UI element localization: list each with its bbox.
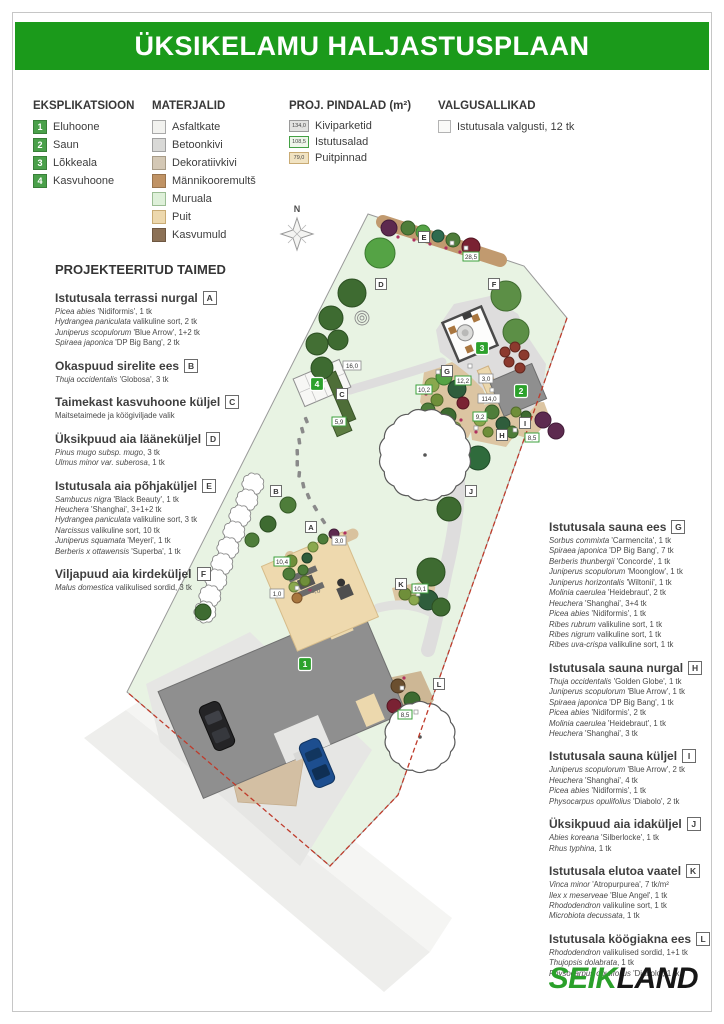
sauna-furniture (504, 357, 514, 367)
plant-item: Juniperus scopulorum 'Blue Arrow', 1 tk (549, 687, 719, 697)
bed-g-plants (431, 394, 443, 406)
sauna-furniture (519, 350, 529, 360)
plant-item: Heuchera 'Shanghai', 3 tk (549, 729, 719, 739)
bed-k-plants (409, 595, 419, 605)
area-labels-planting: 10,1 (412, 584, 428, 593)
garden-lights (436, 370, 440, 374)
plant-item: Physocarpus opulifolius 'Diabolo', 2 tk (549, 797, 719, 807)
section-heading: Üksikpuud aia idaküljel (549, 817, 682, 831)
stepping-stones (297, 471, 301, 478)
bed-a-plants (318, 534, 328, 544)
area-labels-planting: 5,9 (335, 419, 344, 426)
section-letter: F (197, 567, 211, 581)
area-labels-planting: 8,5 (525, 433, 539, 442)
area-labels-paving: 3,0 (479, 374, 493, 383)
apple-tree (503, 319, 529, 345)
zone-label-c: C (339, 390, 345, 399)
section-letter: E (202, 479, 216, 493)
area-labels-paving: 3,0 (335, 538, 344, 545)
section-heading: Istutusala terrassi nurgal (55, 291, 198, 305)
tree (306, 333, 328, 355)
tree (195, 604, 211, 620)
plant-item: Juniperus scopulorum 'Blue Arrow', 1+2 t… (55, 328, 265, 338)
bed-h-plants (511, 407, 521, 417)
area-labels-planting: 28,5 (465, 254, 478, 261)
plant-item: Rhododendron valikulised sordid, 1+1 tk (549, 948, 719, 958)
north-arrow: N (294, 204, 301, 214)
plant-item: Hydrangea paniculata valikuline sort, 2 … (55, 317, 265, 327)
bed-a-plants (302, 553, 312, 563)
section-letter: L (696, 932, 710, 946)
zone-label-d: D (378, 280, 384, 289)
bed-h-plants (483, 427, 493, 437)
section-heading: Viljapuud aia kirdeküljel (55, 567, 192, 581)
plant-list: Sambucus nigra 'Black Beauty', 1 tkHeuch… (55, 495, 265, 558)
plant-list: Maitsetaimede ja köögiviljade valik (55, 411, 265, 421)
bed-north-plants (396, 235, 399, 238)
plant-list: Thuja occidentalis 'Globosa', 3 tk (55, 375, 265, 385)
area-labels-planting: 8,5 (401, 712, 410, 719)
logo-second: LAND (617, 962, 698, 995)
bed-k-plants (432, 598, 450, 616)
section-heading: Üksikpuud aia lääneküljel (55, 432, 201, 446)
plant-item: Ulmus minor var. suberosa, 1 tk (55, 458, 265, 468)
area-labels-planting: 8,5 (398, 710, 412, 719)
sauna-furniture (510, 342, 520, 352)
section-letter: A (203, 291, 217, 305)
plant-section-i: Istutusala sauna küljelI Juniperus scopu… (549, 749, 719, 807)
plant-item: Ribes nigrum valikuline sort, 1 tk (549, 630, 719, 640)
garden-lights (474, 426, 478, 430)
area-labels-paving: 1,0 (270, 589, 284, 598)
garden-lights (295, 586, 299, 590)
area-labels-paving: 3,0 (332, 536, 346, 545)
bed-north-plants (381, 220, 397, 236)
zone-label-a: A (308, 523, 314, 532)
tree (328, 330, 348, 350)
plant-item: Berberis thunbergii 'Concorde', 1 tk (549, 557, 719, 567)
sauna-furniture (500, 347, 510, 357)
plant-list: Sorbus commixta 'Carmencita', 1 tkSpirae… (549, 536, 719, 651)
zone-label-k: K (396, 579, 407, 590)
area-labels-planting: 9,2 (476, 414, 485, 421)
plant-section-g: Istutusala sauna eesG Sorbus commixta 'C… (549, 520, 719, 651)
plant-item: Sambucus nigra 'Black Beauty', 1 tk (55, 495, 265, 505)
garden-lights (513, 428, 517, 432)
zone-label-i: I (520, 418, 531, 429)
badge-greenhouse: 4 (311, 378, 324, 391)
plant-list: Thuja occidentalis 'Golden Globe', 1 tkJ… (549, 677, 719, 740)
plant-list: Vinca minor 'Atropurpurea', 7 tk/m²Ilex … (549, 880, 719, 922)
zone-label-e: E (419, 232, 430, 243)
plan-sheet: ÜKSIKELAMU HALJASTUSPLAAN EKSPLIKATSIOON… (0, 0, 724, 1024)
plant-list: Malus domestica valikulised sordid, 3 tk (55, 583, 265, 593)
plant-item: Juniperus horizontalis 'Wiltonii', 1 tk (549, 578, 719, 588)
plant-item: Thuja occidentalis 'Globosa', 3 tk (55, 375, 265, 385)
bed-a-plants (343, 531, 346, 534)
area-labels-paving: 3,0 (482, 376, 491, 383)
plant-item: Picea abies 'Nidiformis', 2 tk (549, 708, 719, 718)
area-labels-paving: 16,0 (346, 363, 359, 370)
zone-label-f: F (492, 280, 497, 289)
bed-a-plants (298, 565, 308, 575)
plants-column-left: PROJEKTEERITUD TAIMED Istutusala terrass… (55, 262, 265, 604)
zone-label-e: E (421, 233, 426, 242)
bed-g-plants (457, 397, 469, 409)
garden-lights (468, 364, 472, 368)
area-labels-paving: 114,0 (481, 396, 497, 403)
section-letter: D (206, 432, 220, 446)
plant-item: Malus domestica valikulised sordid, 3 tk (55, 583, 265, 593)
plant-item: Ribes uva-crispa valikuline sort, 1 tk (549, 640, 719, 650)
area-labels-paving: 76,0 (308, 588, 321, 595)
zone-label-b: B (273, 487, 279, 496)
plant-item: Juniperus squamata 'Meyeri', 1 tk (55, 536, 265, 546)
bed-a-plants (308, 542, 318, 552)
zone-label-b: B (271, 486, 282, 497)
plants-column-right: Istutusala sauna eesG Sorbus commixta 'C… (549, 520, 719, 989)
bed-north-plants (401, 221, 415, 235)
zone-label-j: J (469, 487, 473, 496)
section-heading: Istutusala sauna ees (549, 520, 666, 534)
zone-label-g: G (444, 367, 450, 376)
area-labels-planting: 10,2 (418, 387, 431, 394)
plant-item: Maitsetaimede ja köögiviljade valik (55, 411, 265, 421)
plants-title: PROJEKTEERITUD TAIMED (55, 262, 265, 277)
plant-item: Pinus mugo subsp. mugo, 3 tk (55, 448, 265, 458)
area-labels-paving: 16,0 (343, 361, 361, 370)
plant-item: Spiraea japonica 'DP Big Bang', 1 tk (549, 698, 719, 708)
zone-label-i: I (524, 419, 526, 428)
zone-label-h: H (497, 430, 508, 441)
existing-tree-trunk (423, 453, 427, 457)
zone-label-c: C (337, 389, 348, 400)
plant-item: Heuchera 'Shanghai', 4 tk (549, 776, 719, 786)
bed-a-plants (292, 593, 302, 603)
plant-section-h: Istutusala sauna nurgalH Thuja occidenta… (549, 661, 719, 740)
zone-label-l: L (434, 679, 445, 690)
plant-item: Berberis x ottawensis 'Superba', 1 tk (55, 547, 265, 557)
logo-first: SEIK (549, 962, 617, 995)
section-letter: G (671, 520, 685, 534)
zone-label-g: G (442, 366, 453, 377)
plant-item: Microbiota decussata, 1 tk (549, 911, 719, 921)
bed-a-plants (283, 568, 295, 580)
area-labels-planting: 5,9 (332, 417, 346, 426)
section-heading: Okaspuud sirelite ees (55, 359, 179, 373)
garden-lights (464, 246, 468, 250)
badge-fire: 3 (480, 343, 485, 353)
badge-house: 1 (303, 659, 308, 669)
section-heading: Istutusala elutoa vaatel (549, 864, 681, 878)
plant-section-f: Viljapuud aia kirdeküljelF Malus domesti… (55, 567, 265, 593)
plant-section-e: Istutusala aia põhjaküljelE Sambucus nig… (55, 479, 265, 558)
area-labels-planting: 9,2 (473, 412, 487, 421)
section-letter: H (688, 661, 702, 675)
bed-l-plants (402, 676, 405, 679)
plant-item: Rhus typhina, 1 tk (549, 844, 719, 854)
plant-section-d: Üksikpuud aia lääneküljelD Pinus mugo su… (55, 432, 265, 469)
area-labels-planting: 10,1 (414, 586, 427, 593)
tree (417, 558, 445, 586)
tree (365, 238, 395, 268)
tree (280, 497, 296, 513)
plant-item: Ilex x meserveae 'Blue Angel', 1 tk (549, 891, 719, 901)
company-logo: SEIKLAND (549, 962, 698, 996)
tree (311, 357, 333, 379)
plant-section-a: Istutusala terrassi nurgalA Picea abies … (55, 291, 265, 349)
plant-item: Juniperus scopulorum 'Moonglow', 1 tk (549, 567, 719, 577)
section-heading: Istutusala aia põhjaküljel (55, 479, 197, 493)
plant-item: Molinia caerulea 'Heidebraut', 1 tk (549, 719, 719, 729)
zone-label-k: K (398, 580, 404, 589)
plant-item: Molinia caerulea 'Heidebraut', 2 tk (549, 588, 719, 598)
area-labels-planting: 28,5 (463, 252, 479, 261)
section-heading: Istutusala sauna küljel (549, 749, 677, 763)
zone-label-a: A (306, 522, 317, 533)
bed-g-plants (459, 418, 462, 421)
plant-item: Heuchera 'Shanghai', 3+4 tk (549, 599, 719, 609)
area-labels-paving: 1,0 (273, 591, 282, 598)
area-labels-paving: 114,0 (478, 394, 500, 403)
plant-item: Vinca minor 'Atropurpurea', 7 tk/m² (549, 880, 719, 890)
sauna-furniture (515, 363, 525, 373)
plant-item: Abies koreana 'Silberlocke', 1 tk (549, 833, 719, 843)
plant-item: Spiraea japonica 'DP Big Bang', 7 tk (549, 546, 719, 556)
section-letter: B (184, 359, 198, 373)
plant-item: Picea abies 'Nidiformis', 1 tk (549, 786, 719, 796)
plant-item: Thuja occidentalis 'Golden Globe', 1 tk (549, 677, 719, 687)
north-arrow: N (281, 204, 313, 250)
section-heading: Taimekast kasvuhoone küljel (55, 395, 220, 409)
tree (437, 497, 461, 521)
plant-item: Sorbus commixta 'Carmencita', 1 tk (549, 536, 719, 546)
badge-sauna: 2 (515, 385, 528, 398)
section-letter: J (687, 817, 701, 831)
tree (338, 279, 366, 307)
plant-item: Juniperus scopulorum 'Blue Arrow', 2 tk (549, 765, 719, 775)
zone-label-h: H (499, 431, 504, 440)
stepping-stones (296, 460, 300, 467)
plant-section-j: Üksikpuud aia idaküljelJ Abies koreana '… (549, 817, 719, 854)
section-letter: C (225, 395, 239, 409)
area-labels-planting: 8,5 (528, 435, 537, 442)
garden-lights (450, 241, 454, 245)
bed-north-plants (458, 250, 461, 253)
zone-label-l: L (437, 680, 442, 689)
plant-item: Rhododendron valikuline sort, 1 tk (549, 901, 719, 911)
garden-lights (414, 710, 418, 714)
bed-a-plants (300, 576, 310, 586)
area-labels-planting: 12,2 (457, 378, 470, 385)
bed-h-plants (535, 412, 551, 428)
plant-item: Picea abies 'Nidiformis', 1 tk (55, 307, 265, 317)
badge-sauna: 2 (519, 386, 524, 396)
plant-section-c: Taimekast kasvuhoone küljelC Maitsetaime… (55, 395, 265, 421)
bed-north-plants (412, 238, 415, 241)
bed-h-plants (548, 423, 564, 439)
plant-section-b: Okaspuud sirelite eesB Thuja occidentali… (55, 359, 265, 385)
plant-section-k: Istutusala elutoa vaatelK Vinca minor 'A… (549, 864, 719, 922)
stepping-stones (295, 449, 299, 456)
badge-house: 1 (299, 658, 312, 671)
plant-item: Hydrangea paniculata valikuline sort, 3 … (55, 515, 265, 525)
zone-label-d: D (376, 279, 387, 290)
plant-item: Spiraea japonica 'DP Big Bang', 2 tk (55, 338, 265, 348)
zone-label-j: J (466, 486, 477, 497)
plant-list: Abies koreana 'Silberlocke', 1 tkRhus ty… (549, 833, 719, 854)
area-labels-planting: 10,2 (416, 385, 432, 394)
bed-north-plants (432, 230, 444, 242)
plant-list: Picea abies 'Nidiformis', 1 tkHydrangea … (55, 307, 265, 349)
badge-fire: 3 (476, 342, 489, 355)
garden-lights (490, 388, 494, 392)
tree (319, 306, 343, 330)
bed-h-plants (474, 430, 477, 433)
bed-north-plants (444, 246, 447, 249)
section-letter: K (686, 864, 700, 878)
plant-item: Ribes rubrum valikuline sort, 1 tk (549, 620, 719, 630)
plant-item: Picea abies 'Nidiformis', 1 tk (549, 609, 719, 619)
garden-lights (400, 686, 404, 690)
badge-greenhouse: 4 (315, 379, 320, 389)
plant-list: Pinus mugo subsp. mugo, 3 tkUlmus minor … (55, 448, 265, 469)
area-labels-planting: 12,2 (455, 376, 471, 385)
section-letter: I (682, 749, 696, 763)
zone-label-f: F (489, 279, 500, 290)
plant-list: Juniperus scopulorum 'Blue Arrow', 2 tkH… (549, 765, 719, 807)
area-labels-planting: 10,4 (276, 559, 289, 566)
section-heading: Istutusala sauna nurgal (549, 661, 683, 675)
area-labels-planting: 10,4 (274, 557, 290, 566)
plant-item: Narcissus valikuline sort, 10 tk (55, 526, 265, 536)
plant-item: Heuchera 'Shanghai', 3+1+2 tk (55, 505, 265, 515)
section-heading: Istutusala köögiakna ees (549, 932, 691, 946)
